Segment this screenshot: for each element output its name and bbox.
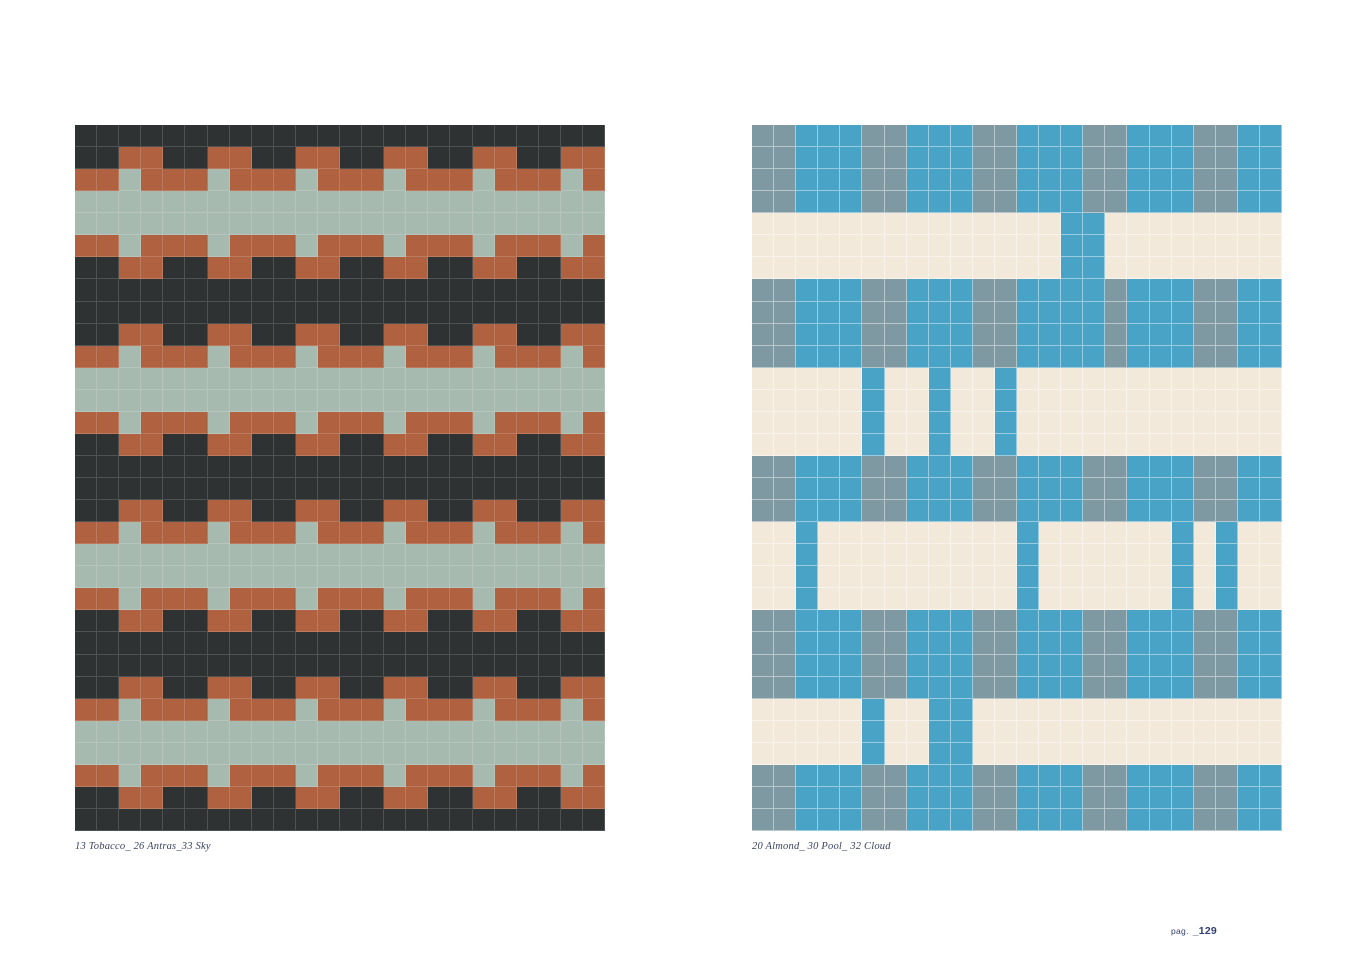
mosaic-tile-tobacco: [428, 346, 450, 368]
mosaic-tile-almond: [774, 412, 796, 434]
mosaic-tile-almond: [1260, 721, 1282, 743]
mosaic-tile-sky: [517, 213, 539, 235]
mosaic-tile-tobacco: [318, 699, 340, 721]
mosaic-tile-tobacco: [141, 412, 163, 434]
mosaic-tile-sky: [208, 412, 230, 434]
mosaic-tile-sky: [517, 390, 539, 412]
mosaic-tile-tobacco: [340, 522, 362, 544]
mosaic-tile-almond: [885, 390, 907, 412]
mosaic-tile-cloud: [995, 500, 1017, 522]
mosaic-tile-almond: [818, 213, 840, 235]
mosaic-tile-pool: [796, 302, 818, 324]
mosaic-tile-almond: [1260, 588, 1282, 610]
mosaic-tile-almond: [1216, 390, 1238, 412]
mosaic-tile-pool: [796, 677, 818, 699]
mosaic-tile-tobacco: [517, 235, 539, 257]
mosaic-tile-antras: [274, 787, 296, 809]
mosaic-tile-sky: [163, 566, 185, 588]
mosaic-tile-antras: [428, 500, 450, 522]
mosaic-tile-pool: [929, 456, 951, 478]
mosaic-tile-almond: [1216, 699, 1238, 721]
mosaic-tile-sky: [163, 390, 185, 412]
mosaic-tile-almond: [796, 368, 818, 390]
mosaic-tile-almond: [995, 566, 1017, 588]
mosaic-tile-antras: [252, 478, 274, 500]
mosaic-tile-sky: [97, 191, 119, 213]
mosaic-tile-sky: [428, 566, 450, 588]
mosaic-tile-antras: [97, 655, 119, 677]
mosaic-tile-tobacco: [208, 324, 230, 346]
mosaic-tile-antras: [362, 302, 384, 324]
mosaic-tile-cloud: [1194, 169, 1216, 191]
mosaic-tile-antras: [428, 809, 450, 831]
mosaic-tile-antras: [539, 147, 561, 169]
mosaic-tile-pool: [862, 743, 884, 765]
mosaic-tile-sky: [362, 566, 384, 588]
mosaic-tile-almond: [929, 213, 951, 235]
mosaic-tile-tobacco: [561, 610, 583, 632]
mosaic-tile-almond: [907, 390, 929, 412]
mosaic-tile-tobacco: [583, 434, 605, 456]
mosaic-tile-almond: [1194, 566, 1216, 588]
mosaic-tile-tobacco: [75, 235, 97, 257]
mosaic-tile-pool: [907, 809, 929, 831]
mosaic-tile-antras: [362, 809, 384, 831]
mosaic-tile-sky: [495, 544, 517, 566]
mosaic-tile-pool: [907, 147, 929, 169]
mosaic-tile-almond: [929, 588, 951, 610]
mosaic-tile-tobacco: [208, 500, 230, 522]
mosaic-tile-almond: [840, 588, 862, 610]
mosaic-tile-antras: [517, 456, 539, 478]
mosaic-tile-almond: [885, 368, 907, 390]
mosaic-tile-tobacco: [495, 787, 517, 809]
mosaic-tile-pool: [1238, 147, 1260, 169]
mosaic-tile-almond: [1172, 235, 1194, 257]
mosaic-tile-cloud: [862, 765, 884, 787]
mosaic-tile-antras: [208, 279, 230, 301]
mosaic-tile-cloud: [1105, 302, 1127, 324]
mosaic-tile-cloud: [885, 500, 907, 522]
mosaic-tile-pool: [1039, 191, 1061, 213]
mosaic-tile-pool: [1061, 632, 1083, 654]
mosaic-tile-sky: [340, 390, 362, 412]
mosaic-tile-sky: [473, 721, 495, 743]
mosaic-tile-tobacco: [141, 699, 163, 721]
mosaic-tile-pool: [1127, 655, 1149, 677]
mosaic-tile-pool: [1061, 655, 1083, 677]
mosaic-tile-almond: [818, 566, 840, 588]
mosaic-tile-cloud: [995, 809, 1017, 831]
mosaic-tile-almond: [774, 566, 796, 588]
mosaic-tile-cloud: [752, 346, 774, 368]
mosaic-tile-almond: [752, 412, 774, 434]
mosaic-tile-pool: [1127, 147, 1149, 169]
mosaic-tile-cloud: [885, 632, 907, 654]
mosaic-tile-almond: [1150, 412, 1172, 434]
mosaic-tile-tobacco: [495, 500, 517, 522]
mosaic-tile-almond: [1194, 721, 1216, 743]
mosaic-tile-pool: [1172, 655, 1194, 677]
mosaic-tile-almond: [840, 368, 862, 390]
mosaic-tile-tobacco: [539, 765, 561, 787]
mosaic-tile-antras: [473, 655, 495, 677]
mosaic-tile-sky: [539, 213, 561, 235]
mosaic-tile-tobacco: [274, 346, 296, 368]
mosaic-tile-antras: [75, 809, 97, 831]
mosaic-tile-antras: [296, 125, 318, 147]
mosaic-tile-antras: [252, 500, 274, 522]
mosaic-tile-tobacco: [428, 765, 450, 787]
mosaic-tile-sky: [97, 390, 119, 412]
mosaic-tile-almond: [1105, 213, 1127, 235]
mosaic-tile-antras: [163, 809, 185, 831]
mosaic-tile-tobacco: [141, 434, 163, 456]
mosaic-tile-tobacco: [318, 324, 340, 346]
mosaic-tile-pool: [862, 721, 884, 743]
mosaic-tile-tobacco: [75, 522, 97, 544]
mosaic-tile-tobacco: [384, 434, 406, 456]
mosaic-tile-cloud: [885, 787, 907, 809]
mosaic-tile-antras: [384, 279, 406, 301]
mosaic-tile-sky: [318, 390, 340, 412]
mosaic-tile-antras: [340, 655, 362, 677]
mosaic-tile-almond: [973, 588, 995, 610]
mosaic-tile-sky: [296, 169, 318, 191]
mosaic-tile-pool: [1260, 324, 1282, 346]
mosaic-tile-antras: [252, 787, 274, 809]
mosaic-tile-almond: [862, 566, 884, 588]
mosaic-tile-sky: [384, 213, 406, 235]
mosaic-tile-pool: [818, 765, 840, 787]
mosaic-tile-tobacco: [230, 235, 252, 257]
mosaic-tile-antras: [539, 632, 561, 654]
mosaic-tile-pool: [1260, 279, 1282, 301]
mosaic-tile-sky: [428, 213, 450, 235]
mosaic-tile-cloud: [885, 302, 907, 324]
mosaic-tile-antras: [428, 610, 450, 632]
mosaic-tile-sky: [450, 544, 472, 566]
mosaic-tile-cloud: [1194, 478, 1216, 500]
mosaic-tile-cloud: [774, 610, 796, 632]
mosaic-tile-sky: [274, 368, 296, 390]
mosaic-tile-sky: [583, 368, 605, 390]
mosaic-tile-almond: [1083, 522, 1105, 544]
mosaic-tile-pool: [862, 699, 884, 721]
mosaic-tile-cloud: [1194, 655, 1216, 677]
mosaic-tile-pool: [1150, 302, 1172, 324]
mosaic-tile-sky: [119, 169, 141, 191]
mosaic-tile-almond: [774, 434, 796, 456]
mosaic-tile-almond: [885, 412, 907, 434]
mosaic-tile-almond: [973, 368, 995, 390]
mosaic-tile-tobacco: [583, 610, 605, 632]
mosaic-tile-almond: [973, 390, 995, 412]
mosaic-tile-antras: [163, 655, 185, 677]
mosaic-tile-cloud: [885, 677, 907, 699]
mosaic-tile-antras: [163, 632, 185, 654]
mosaic-tile-pool: [1127, 191, 1149, 213]
mosaic-tile-pool: [840, 346, 862, 368]
mosaic-tile-tobacco: [561, 677, 583, 699]
mosaic-tile-cloud: [1194, 610, 1216, 632]
mosaic-tile-sky: [185, 721, 207, 743]
mosaic-tile-sky: [318, 213, 340, 235]
mosaic-tile-tobacco: [185, 588, 207, 610]
mosaic-tile-pool: [1061, 125, 1083, 147]
mosaic-tile-antras: [340, 147, 362, 169]
mosaic-tile-pool: [1127, 500, 1149, 522]
mosaic-tile-cloud: [1216, 655, 1238, 677]
mosaic-tile-pool: [1216, 522, 1238, 544]
mosaic-tile-tobacco: [517, 699, 539, 721]
mosaic-tile-tobacco: [384, 677, 406, 699]
mosaic-tile-cloud: [1105, 346, 1127, 368]
mosaic-tile-cloud: [774, 191, 796, 213]
mosaic-tile-cloud: [973, 456, 995, 478]
mosaic-tile-cloud: [774, 478, 796, 500]
mosaic-tile-almond: [1039, 743, 1061, 765]
mosaic-tile-antras: [495, 655, 517, 677]
mosaic-tile-pool: [796, 522, 818, 544]
mosaic-tile-sky: [141, 191, 163, 213]
mosaic-tile-pool: [1083, 324, 1105, 346]
mosaic-tile-pool: [951, 169, 973, 191]
mosaic-tile-pool: [1172, 191, 1194, 213]
mosaic-tile-almond: [774, 390, 796, 412]
mosaic-tile-cloud: [995, 655, 1017, 677]
mosaic-tile-pool: [1238, 478, 1260, 500]
mosaic-tile-antras: [274, 456, 296, 478]
mosaic-tile-almond: [1127, 588, 1149, 610]
mosaic-tile-tobacco: [97, 765, 119, 787]
mosaic-tile-pool: [1172, 588, 1194, 610]
mosaic-tile-pool: [862, 368, 884, 390]
mosaic-tile-almond: [840, 235, 862, 257]
mosaic-tile-sky: [318, 191, 340, 213]
mosaic-tile-tobacco: [318, 765, 340, 787]
mosaic-tile-antras: [75, 456, 97, 478]
mosaic-tile-sky: [296, 544, 318, 566]
mosaic-tile-tobacco: [539, 522, 561, 544]
mosaic-tile-sky: [517, 721, 539, 743]
mosaic-tile-sky: [163, 721, 185, 743]
mosaic-tile-almond: [1039, 699, 1061, 721]
mosaic-tile-almond: [1260, 213, 1282, 235]
mosaic-tile-antras: [185, 478, 207, 500]
mosaic-tile-almond: [1127, 566, 1149, 588]
mosaic-tile-antras: [495, 809, 517, 831]
mosaic-tile-almond: [840, 544, 862, 566]
mosaic-tile-antras: [185, 610, 207, 632]
mosaic-tile-pool: [1017, 588, 1039, 610]
mosaic-tile-almond: [796, 213, 818, 235]
mosaic-tile-almond: [1083, 699, 1105, 721]
mosaic-tile-almond: [1039, 721, 1061, 743]
mosaic-tile-tobacco: [517, 765, 539, 787]
mosaic-tile-sky: [384, 544, 406, 566]
mosaic-tile-pool: [1039, 655, 1061, 677]
mosaic-tile-sky: [75, 368, 97, 390]
mosaic-tile-cloud: [1083, 809, 1105, 831]
mosaic-tile-antras: [583, 809, 605, 831]
mosaic-tile-pool: [951, 500, 973, 522]
mosaic-tile-antras: [473, 632, 495, 654]
mosaic-tile-cloud: [752, 809, 774, 831]
mosaic-tile-antras: [495, 632, 517, 654]
mosaic-tile-pool: [1172, 765, 1194, 787]
mosaic-tile-cloud: [1083, 125, 1105, 147]
mosaic-tile-sky: [384, 346, 406, 368]
mosaic-tile-sky: [340, 191, 362, 213]
mosaic-tile-antras: [252, 147, 274, 169]
mosaic-tile-almond: [752, 235, 774, 257]
mosaic-tile-almond: [1260, 699, 1282, 721]
mosaic-tile-tobacco: [230, 500, 252, 522]
mosaic-tile-almond: [1238, 368, 1260, 390]
mosaic-tile-tobacco: [252, 588, 274, 610]
mosaic-tile-sky: [252, 566, 274, 588]
mosaic-tile-antras: [274, 125, 296, 147]
mosaic-tile-sky: [561, 412, 583, 434]
mosaic-tile-antras: [384, 478, 406, 500]
mosaic-tile-cloud: [1194, 677, 1216, 699]
mosaic-tile-sky: [274, 390, 296, 412]
mosaic-tile-antras: [340, 434, 362, 456]
mosaic-tile-cloud: [1216, 500, 1238, 522]
mosaic-tile-antras: [450, 809, 472, 831]
mosaic-tile-tobacco: [97, 522, 119, 544]
mosaic-tile-pool: [1150, 478, 1172, 500]
mosaic-tile-almond: [796, 390, 818, 412]
mosaic-tile-almond: [1017, 368, 1039, 390]
mosaic-tile-pool: [1172, 302, 1194, 324]
mosaic-tile-pool: [1150, 655, 1172, 677]
mosaic-tile-almond: [1238, 588, 1260, 610]
mosaic-tile-cloud: [1083, 610, 1105, 632]
mosaic-tile-tobacco: [163, 699, 185, 721]
mosaic-tile-almond: [907, 699, 929, 721]
mosaic-tile-sky: [561, 368, 583, 390]
mosaic-tile-almond: [1238, 257, 1260, 279]
mosaic-tile-pool: [1172, 566, 1194, 588]
mosaic-tile-almond: [973, 213, 995, 235]
mosaic-tile-almond: [973, 566, 995, 588]
mosaic-tile-pool: [951, 809, 973, 831]
mosaic-tile-pool: [951, 324, 973, 346]
mosaic-tile-antras: [97, 279, 119, 301]
mosaic-tile-tobacco: [75, 169, 97, 191]
mosaic-tile-tobacco: [296, 610, 318, 632]
mosaic-tile-cloud: [1105, 655, 1127, 677]
mosaic-tile-antras: [97, 147, 119, 169]
mosaic-tile-almond: [1127, 390, 1149, 412]
mosaic-tile-antras: [97, 456, 119, 478]
mosaic-tile-pool: [1150, 456, 1172, 478]
mosaic-tile-almond: [1172, 699, 1194, 721]
mosaic-tile-antras: [450, 279, 472, 301]
mosaic-tile-pool: [1127, 610, 1149, 632]
mosaic-tile-antras: [428, 147, 450, 169]
mosaic-tile-almond: [1083, 390, 1105, 412]
mosaic-tile-antras: [75, 632, 97, 654]
mosaic-tile-sky: [384, 169, 406, 191]
mosaic-tile-tobacco: [384, 147, 406, 169]
mosaic-tile-tobacco: [473, 147, 495, 169]
mosaic-tile-antras: [252, 809, 274, 831]
mosaic-tile-tobacco: [274, 522, 296, 544]
mosaic-tile-pool: [1127, 324, 1149, 346]
mosaic-tile-cloud: [774, 677, 796, 699]
mosaic-tile-pool: [840, 787, 862, 809]
mosaic-tile-tobacco: [163, 588, 185, 610]
mosaic-tile-pool: [1260, 787, 1282, 809]
mosaic-tile-pool: [818, 279, 840, 301]
mosaic-tile-cloud: [774, 346, 796, 368]
mosaic-tile-antras: [208, 478, 230, 500]
mosaic-tile-antras: [296, 478, 318, 500]
mosaic-tile-sky: [208, 235, 230, 257]
mosaic-tile-tobacco: [340, 699, 362, 721]
mosaic-tile-almond: [752, 390, 774, 412]
mosaic-tile-antras: [539, 125, 561, 147]
mosaic-tile-antras: [495, 478, 517, 500]
mosaic-tile-almond: [796, 721, 818, 743]
mosaic-tile-almond: [774, 544, 796, 566]
mosaic-tile-pool: [951, 279, 973, 301]
mosaic-tile-sky: [75, 743, 97, 765]
mosaic-tile-almond: [951, 235, 973, 257]
mosaic-tile-sky: [119, 765, 141, 787]
mosaic-tile-antras: [185, 500, 207, 522]
mosaic-tile-antras: [362, 677, 384, 699]
mosaic-tile-almond: [840, 721, 862, 743]
mosaic-tile-tobacco: [208, 610, 230, 632]
mosaic-tile-almond: [1083, 412, 1105, 434]
mosaic-tile-antras: [230, 456, 252, 478]
mosaic-tile-sky: [274, 544, 296, 566]
mosaic-tile-cloud: [973, 787, 995, 809]
mosaic-tile-sky: [561, 721, 583, 743]
mosaic-tile-cloud: [1194, 787, 1216, 809]
mosaic-tile-antras: [539, 787, 561, 809]
mosaic-tile-antras: [406, 456, 428, 478]
mosaic-tile-pool: [840, 191, 862, 213]
mosaic-tile-antras: [517, 279, 539, 301]
mosaic-tile-almond: [1216, 368, 1238, 390]
mosaic-tile-cloud: [973, 610, 995, 632]
mosaic-tile-antras: [539, 456, 561, 478]
mosaic-tile-sky: [495, 213, 517, 235]
mosaic-tile-almond: [1238, 566, 1260, 588]
mosaic-tile-antras: [141, 632, 163, 654]
mosaic-tile-pool: [1039, 125, 1061, 147]
mosaic-tile-tobacco: [274, 765, 296, 787]
mosaic-tile-antras: [230, 279, 252, 301]
mosaic-tile-antras: [428, 655, 450, 677]
mosaic-tile-cloud: [885, 147, 907, 169]
mosaic-tile-almond: [1216, 412, 1238, 434]
mosaic-tile-almond: [1127, 412, 1149, 434]
mosaic-tile-antras: [141, 125, 163, 147]
mosaic-tile-tobacco: [230, 699, 252, 721]
mosaic-tile-cloud: [1194, 456, 1216, 478]
mosaic-tile-sky: [384, 588, 406, 610]
mosaic-tile-cloud: [752, 765, 774, 787]
mosaic-tile-pool: [796, 125, 818, 147]
mosaic-tile-sky: [473, 368, 495, 390]
mosaic-tile-tobacco: [230, 147, 252, 169]
